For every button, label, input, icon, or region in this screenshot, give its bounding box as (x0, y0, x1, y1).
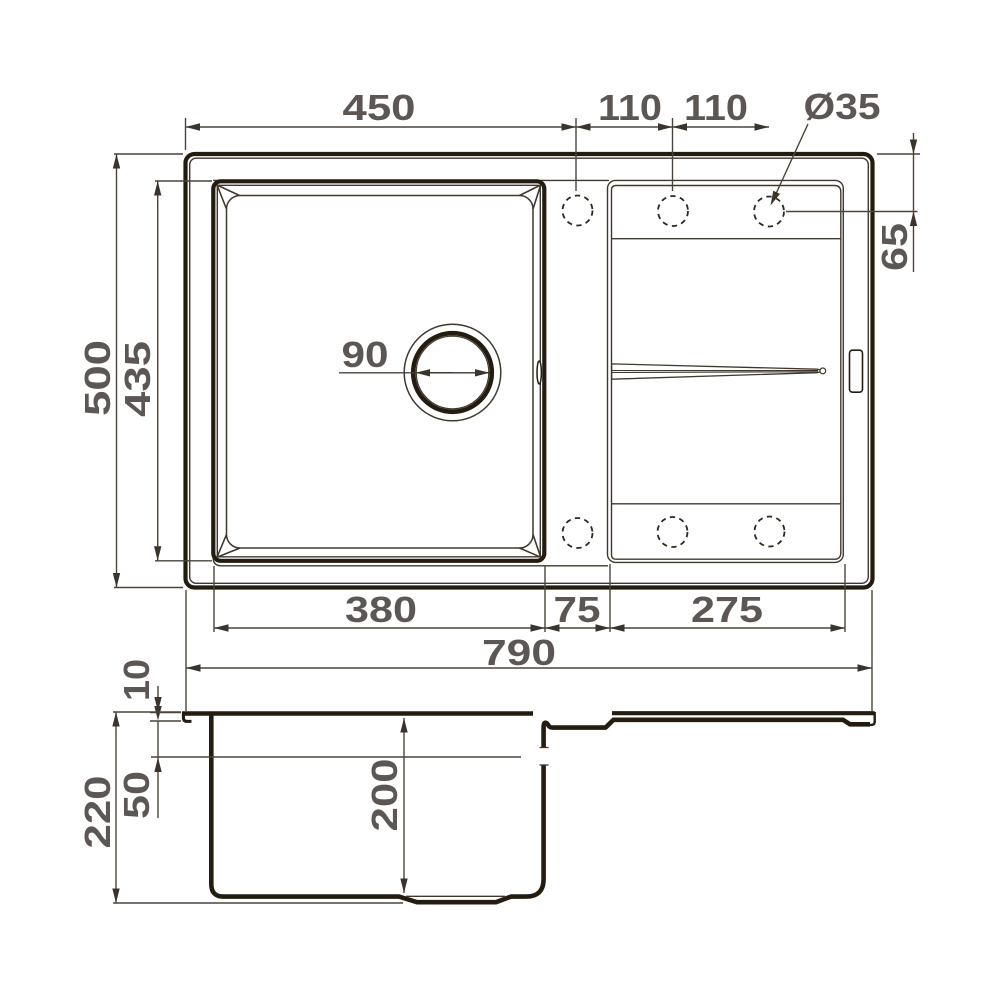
svg-text:10: 10 (116, 659, 157, 701)
svg-text:110: 110 (684, 87, 748, 128)
svg-text:75: 75 (554, 589, 601, 630)
svg-text:220: 220 (77, 776, 118, 849)
svg-text:90: 90 (342, 334, 389, 375)
svg-text:450: 450 (343, 87, 416, 128)
svg-text:380: 380 (345, 589, 417, 630)
svg-text:65: 65 (874, 223, 915, 271)
svg-text:110: 110 (598, 87, 662, 128)
svg-text:50: 50 (116, 771, 157, 819)
svg-text:790: 790 (482, 632, 556, 673)
svg-text:200: 200 (364, 759, 405, 832)
svg-text:Ø35: Ø35 (804, 86, 881, 127)
svg-text:435: 435 (117, 341, 158, 417)
svg-text:500: 500 (77, 340, 118, 416)
svg-text:275: 275 (691, 589, 763, 630)
